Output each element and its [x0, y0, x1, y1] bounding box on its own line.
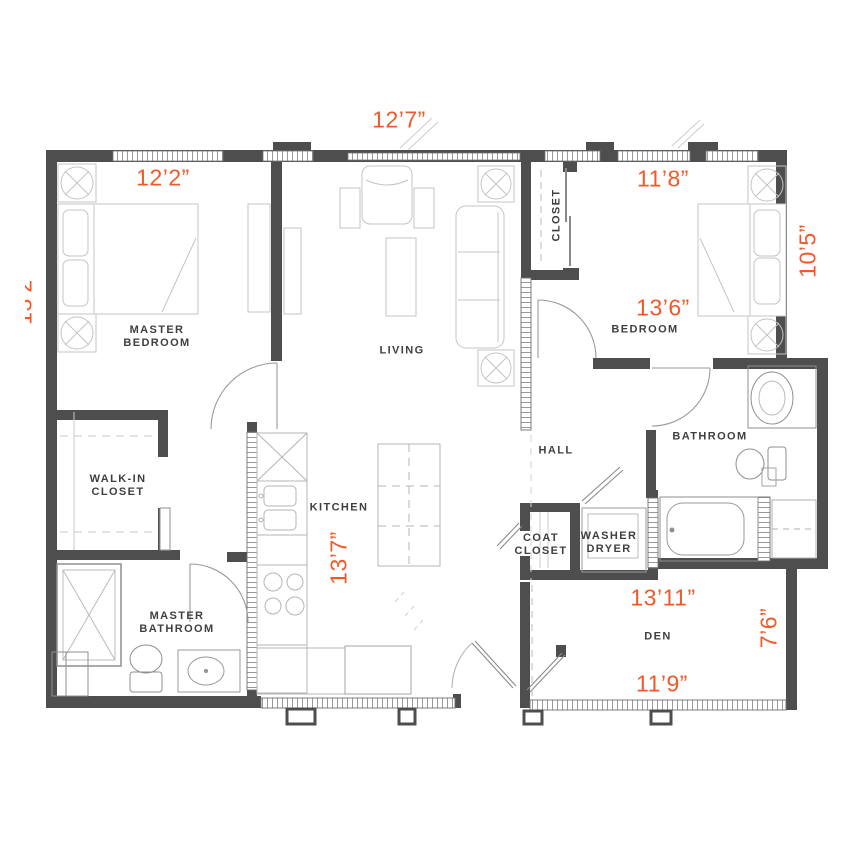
dimension-den-bottom-width: 11’9”	[636, 671, 688, 698]
room-label-walk-in-closet: WALK-IN CLOSET	[90, 473, 147, 499]
room-label-hall: HALL	[539, 445, 574, 458]
room-label-living: LIVING	[379, 345, 424, 358]
dimension-den-depth: 7’6”	[756, 608, 783, 648]
dimension-den-width: 13’11”	[630, 585, 695, 612]
room-label-master-bedroom: MASTER BEDROOM	[123, 324, 190, 350]
room-label-kitchen: KITCHEN	[310, 502, 369, 515]
plan-text-layer: MASTER BEDROOM LIVING CLOSET BEDROOM WAL…	[25, 0, 844, 844]
dimension-master-bedroom-depth: 13’2”	[25, 271, 38, 325]
room-label-washer-dryer: WASHER DRYER	[581, 530, 638, 556]
room-label-master-bathroom: MASTER BATHROOM	[139, 610, 214, 636]
dimension-top-width: 12’7”	[372, 107, 426, 134]
floor-plan: MASTER BEDROOM LIVING CLOSET BEDROOM WAL…	[0, 0, 844, 844]
dimension-master-bedroom-width: 12’2”	[136, 165, 190, 192]
dimension-kitchen-depth: 13’7”	[326, 531, 353, 585]
room-label-bedroom: BEDROOM	[611, 324, 678, 337]
dimension-bedroom-width: 11’8”	[637, 166, 689, 193]
dimension-bedroom-depth: 10’5”	[795, 224, 822, 278]
room-label-closet: CLOSET	[551, 188, 564, 241]
dimension-bedroom-length: 13’6”	[636, 295, 690, 322]
room-label-bathroom: BATHROOM	[672, 431, 747, 444]
room-label-den: DEN	[644, 631, 671, 644]
room-label-coat-closet: COAT CLOSET	[514, 532, 567, 558]
